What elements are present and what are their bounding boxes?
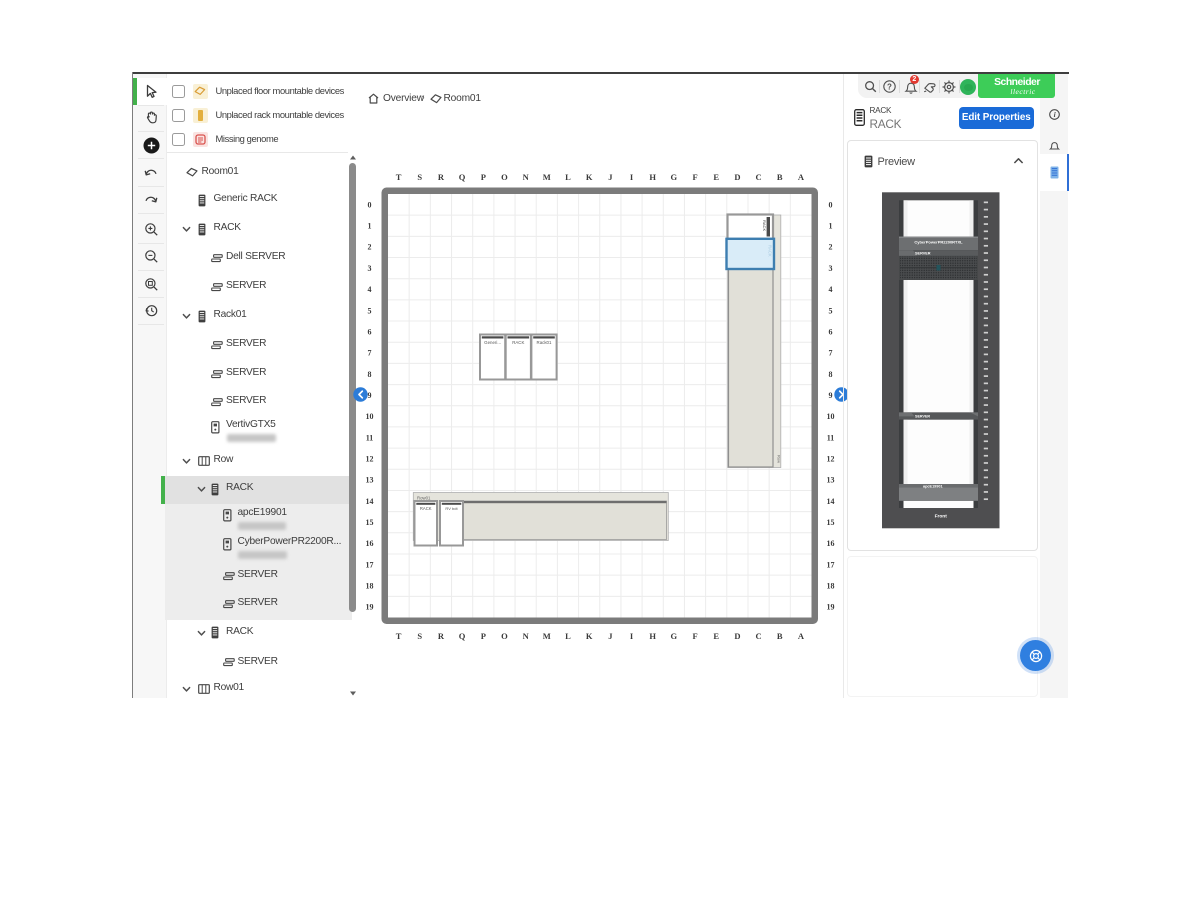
svg-text:11: 11 bbox=[366, 433, 374, 442]
svg-text:E: E bbox=[713, 172, 719, 182]
svg-text:6: 6 bbox=[829, 327, 833, 336]
svg-text:8: 8 bbox=[368, 370, 372, 379]
svg-text:11: 11 bbox=[827, 433, 835, 442]
svg-text:B: B bbox=[777, 631, 783, 641]
svg-text:9: 9 bbox=[829, 391, 833, 400]
svg-text:J: J bbox=[608, 172, 613, 182]
svg-text:15: 15 bbox=[827, 518, 835, 527]
svg-text:i: i bbox=[1053, 110, 1056, 119]
svg-text:6: 6 bbox=[368, 327, 372, 336]
svg-text:8: 8 bbox=[829, 370, 833, 379]
svg-text:7: 7 bbox=[829, 349, 833, 358]
svg-text:Q: Q bbox=[459, 172, 466, 182]
svg-text:2: 2 bbox=[368, 243, 372, 252]
svg-text:O: O bbox=[501, 631, 508, 641]
svg-text:12: 12 bbox=[827, 454, 835, 463]
svg-text:G: G bbox=[671, 172, 678, 182]
svg-text:Row: Row bbox=[777, 455, 782, 463]
svg-text:L: L bbox=[565, 631, 571, 641]
svg-text:C: C bbox=[755, 172, 761, 182]
svg-text:Rack01: Rack01 bbox=[537, 340, 552, 345]
svg-text:R: R bbox=[438, 631, 445, 641]
svg-text:M: M bbox=[543, 172, 551, 182]
svg-text:13: 13 bbox=[827, 476, 835, 485]
svg-text:1: 1 bbox=[829, 222, 833, 231]
svg-text:O: O bbox=[501, 172, 508, 182]
svg-text:0: 0 bbox=[829, 200, 833, 209]
svg-text:F: F bbox=[692, 631, 697, 641]
svg-text:I: I bbox=[630, 172, 634, 182]
svg-text:7: 7 bbox=[368, 349, 372, 358]
svg-text:Row01: Row01 bbox=[417, 496, 431, 501]
svg-text:2: 2 bbox=[829, 243, 833, 252]
svg-text:14: 14 bbox=[366, 497, 374, 506]
svg-text:Q: Q bbox=[459, 631, 466, 641]
svg-text:10: 10 bbox=[827, 412, 835, 421]
svg-text:10: 10 bbox=[366, 412, 374, 421]
svg-text:1: 1 bbox=[368, 222, 372, 231]
svg-text:R: R bbox=[438, 172, 445, 182]
svg-text:14: 14 bbox=[827, 497, 835, 506]
svg-text:H: H bbox=[649, 172, 656, 182]
svg-text:N: N bbox=[523, 631, 530, 641]
svg-text:J: J bbox=[608, 631, 613, 641]
svg-text:Front: Front bbox=[935, 514, 948, 520]
svg-text:12: 12 bbox=[366, 454, 374, 463]
svg-text:F: F bbox=[692, 172, 697, 182]
svg-text:K: K bbox=[586, 172, 593, 182]
svg-text:P: P bbox=[481, 172, 486, 182]
svg-text:P: P bbox=[481, 631, 486, 641]
svg-text:T: T bbox=[396, 172, 402, 182]
svg-text:L: L bbox=[565, 172, 571, 182]
svg-text:RACK: RACK bbox=[762, 220, 767, 231]
svg-text:3: 3 bbox=[368, 264, 372, 273]
svg-text:4: 4 bbox=[829, 285, 833, 294]
svg-text:RACK: RACK bbox=[420, 506, 432, 511]
svg-text:RACK: RACK bbox=[512, 340, 524, 345]
svg-text:SERVER: SERVER bbox=[915, 252, 931, 256]
svg-text:D: D bbox=[734, 631, 740, 641]
svg-text:17: 17 bbox=[366, 560, 374, 569]
svg-text:5: 5 bbox=[829, 306, 833, 315]
svg-text:G: G bbox=[671, 631, 678, 641]
svg-text:C: C bbox=[755, 631, 761, 641]
svg-text:K: K bbox=[586, 631, 593, 641]
svg-text:S: S bbox=[417, 172, 422, 182]
svg-text:RV bdt: RV bdt bbox=[445, 506, 458, 511]
svg-text:A: A bbox=[798, 172, 805, 182]
svg-text:H: H bbox=[649, 631, 656, 641]
svg-text:18: 18 bbox=[366, 582, 374, 591]
svg-text:M: M bbox=[543, 631, 551, 641]
svg-text:N: N bbox=[523, 172, 530, 182]
svg-text:3: 3 bbox=[829, 264, 833, 273]
svg-text:CyberPowerPR2200RTXL: CyberPowerPR2200RTXL bbox=[914, 240, 963, 245]
svg-text:D: D bbox=[734, 172, 740, 182]
svg-text:B: B bbox=[777, 172, 783, 182]
svg-text:I: I bbox=[630, 631, 634, 641]
svg-text:19: 19 bbox=[827, 603, 835, 612]
svg-text:5: 5 bbox=[368, 306, 372, 315]
svg-text:15: 15 bbox=[366, 518, 374, 527]
svg-text:13: 13 bbox=[366, 476, 374, 485]
svg-text:17: 17 bbox=[827, 560, 835, 569]
svg-text:16: 16 bbox=[366, 539, 374, 548]
svg-text:0: 0 bbox=[368, 200, 372, 209]
svg-text:apcE19901: apcE19901 bbox=[923, 484, 943, 488]
svg-text:S: S bbox=[417, 631, 422, 641]
svg-text:?: ? bbox=[887, 82, 892, 91]
svg-text:T: T bbox=[396, 631, 402, 641]
svg-text:16: 16 bbox=[827, 539, 835, 548]
svg-text:18: 18 bbox=[827, 582, 835, 591]
svg-text:SERVER: SERVER bbox=[915, 415, 930, 419]
svg-text:E: E bbox=[713, 631, 719, 641]
svg-text:Generi...: Generi... bbox=[484, 340, 501, 345]
svg-text:19: 19 bbox=[366, 603, 374, 612]
svg-text:RACK: RACK bbox=[768, 245, 773, 257]
svg-text:A: A bbox=[798, 631, 805, 641]
svg-text:4: 4 bbox=[368, 285, 372, 294]
